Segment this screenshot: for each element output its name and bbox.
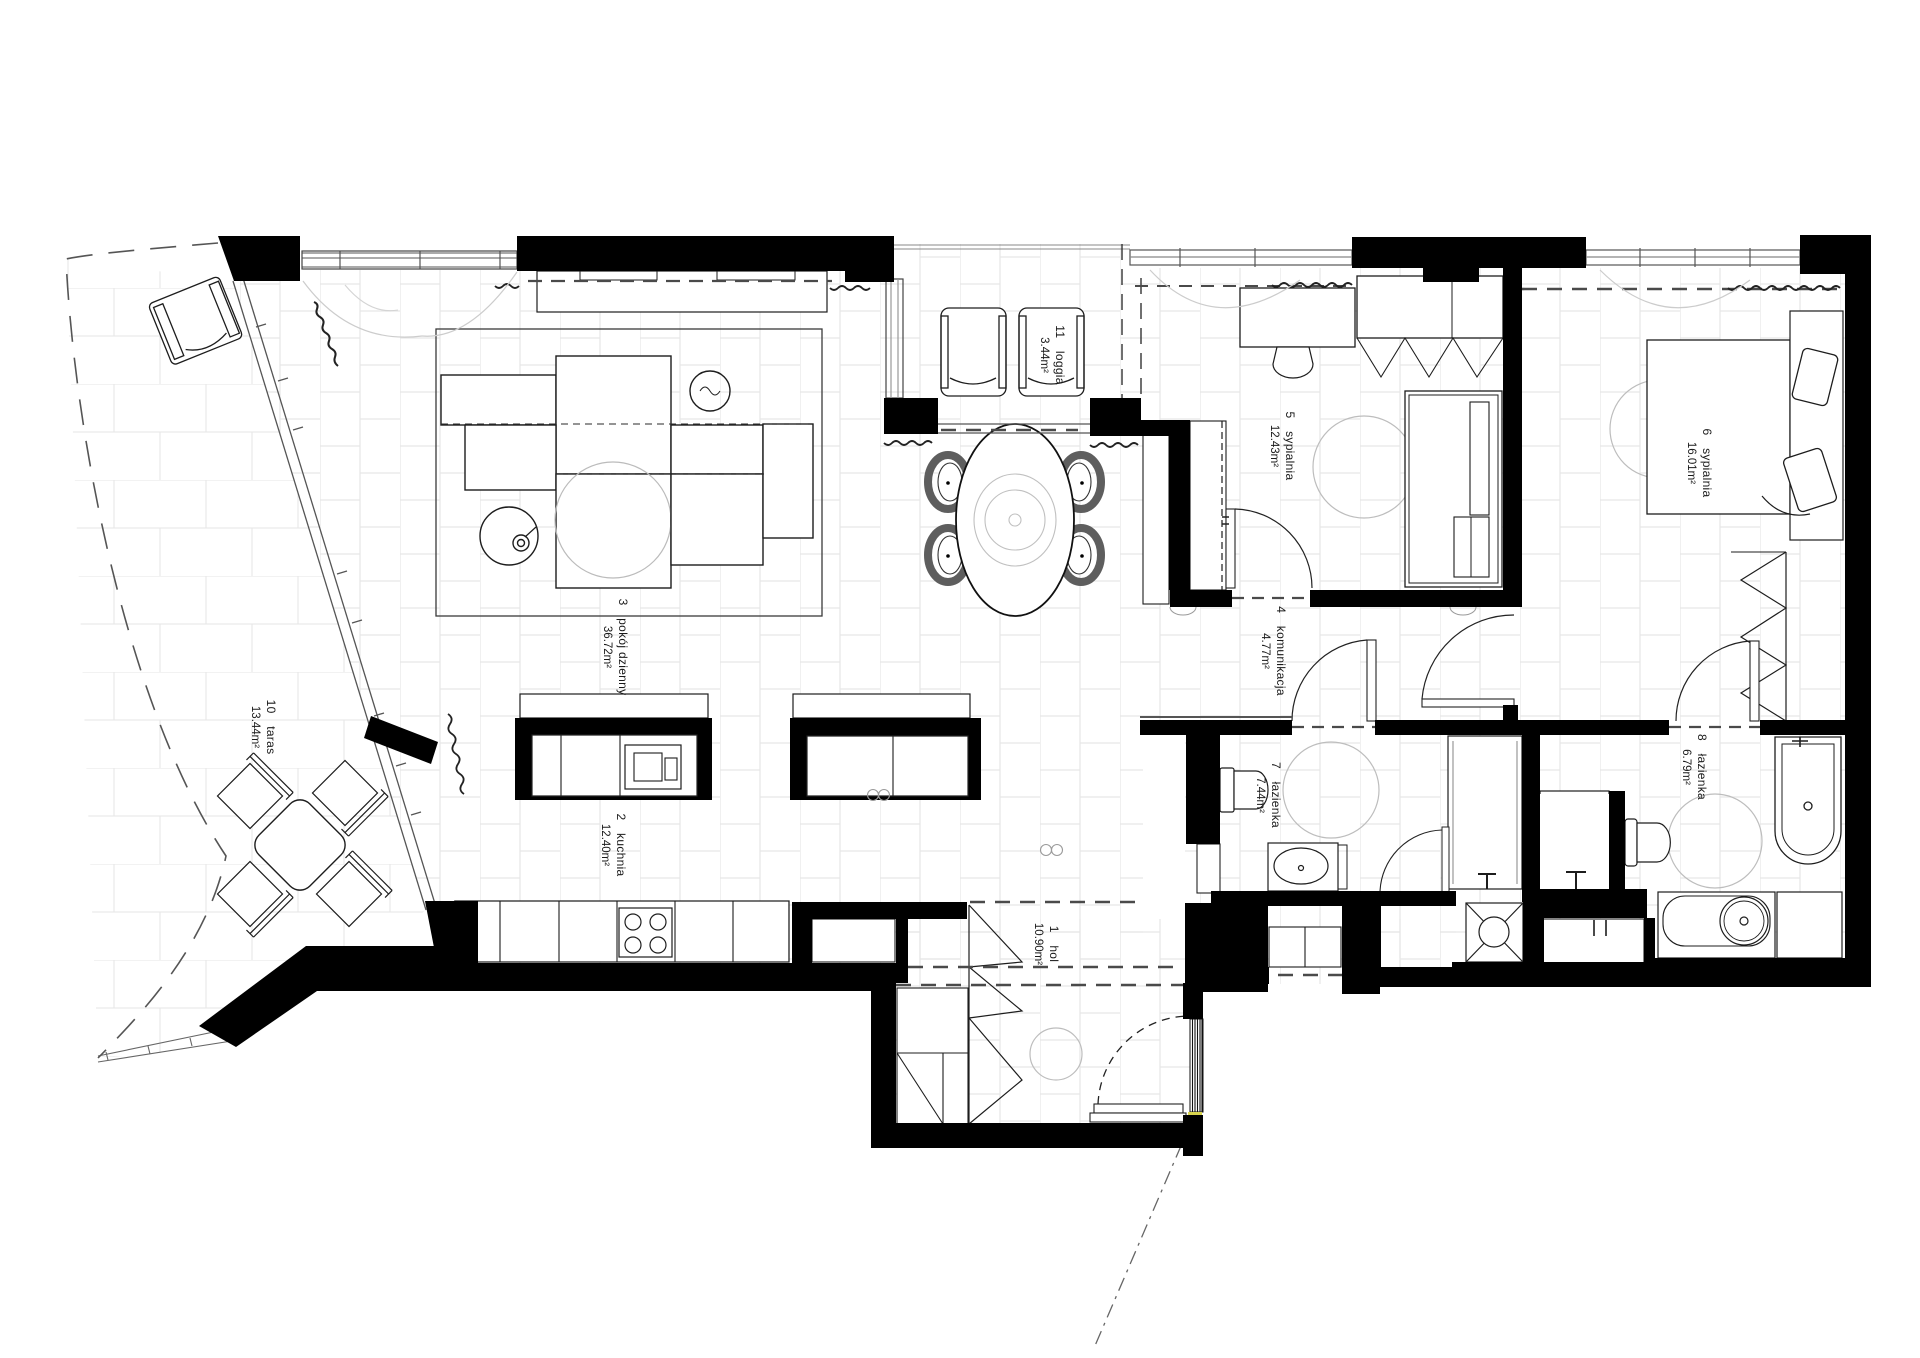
svg-text:10 taras: 10 taras bbox=[264, 700, 278, 755]
svg-text:5 sypialnia: 5 sypialnia bbox=[1283, 412, 1297, 481]
svg-text:12.40m²: 12.40m² bbox=[599, 824, 611, 866]
svg-text:3.44m²: 3.44m² bbox=[1038, 337, 1050, 373]
svg-text:8 łazienka: 8 łazienka bbox=[1695, 734, 1709, 800]
svg-text:3 pokój dzienny: 3 pokój dzienny bbox=[616, 599, 630, 696]
svg-text:4 komunikacja: 4 komunikacja bbox=[1274, 606, 1288, 696]
svg-text:7.44m²: 7.44m² bbox=[1254, 777, 1266, 813]
svg-text:10.90m²: 10.90m² bbox=[1032, 923, 1044, 965]
svg-text:36.72m²: 36.72m² bbox=[601, 626, 613, 668]
svg-text:2 kuchnia: 2 kuchnia bbox=[614, 813, 628, 876]
svg-text:16.01m²: 16.01m² bbox=[1685, 442, 1697, 484]
svg-text:7 łazienka: 7 łazienka bbox=[1269, 762, 1283, 828]
svg-text:6.79m²: 6.79m² bbox=[1680, 749, 1692, 785]
svg-text:6 sypialnia: 6 sypialnia bbox=[1700, 429, 1714, 498]
svg-text:4.77m²: 4.77m² bbox=[1259, 633, 1271, 669]
svg-text:13.44m²: 13.44m² bbox=[249, 706, 261, 748]
svg-text:11 loggia: 11 loggia bbox=[1053, 325, 1067, 385]
svg-text:12.43m²: 12.43m² bbox=[1268, 425, 1280, 467]
svg-text:1 hol: 1 hol bbox=[1047, 926, 1061, 963]
